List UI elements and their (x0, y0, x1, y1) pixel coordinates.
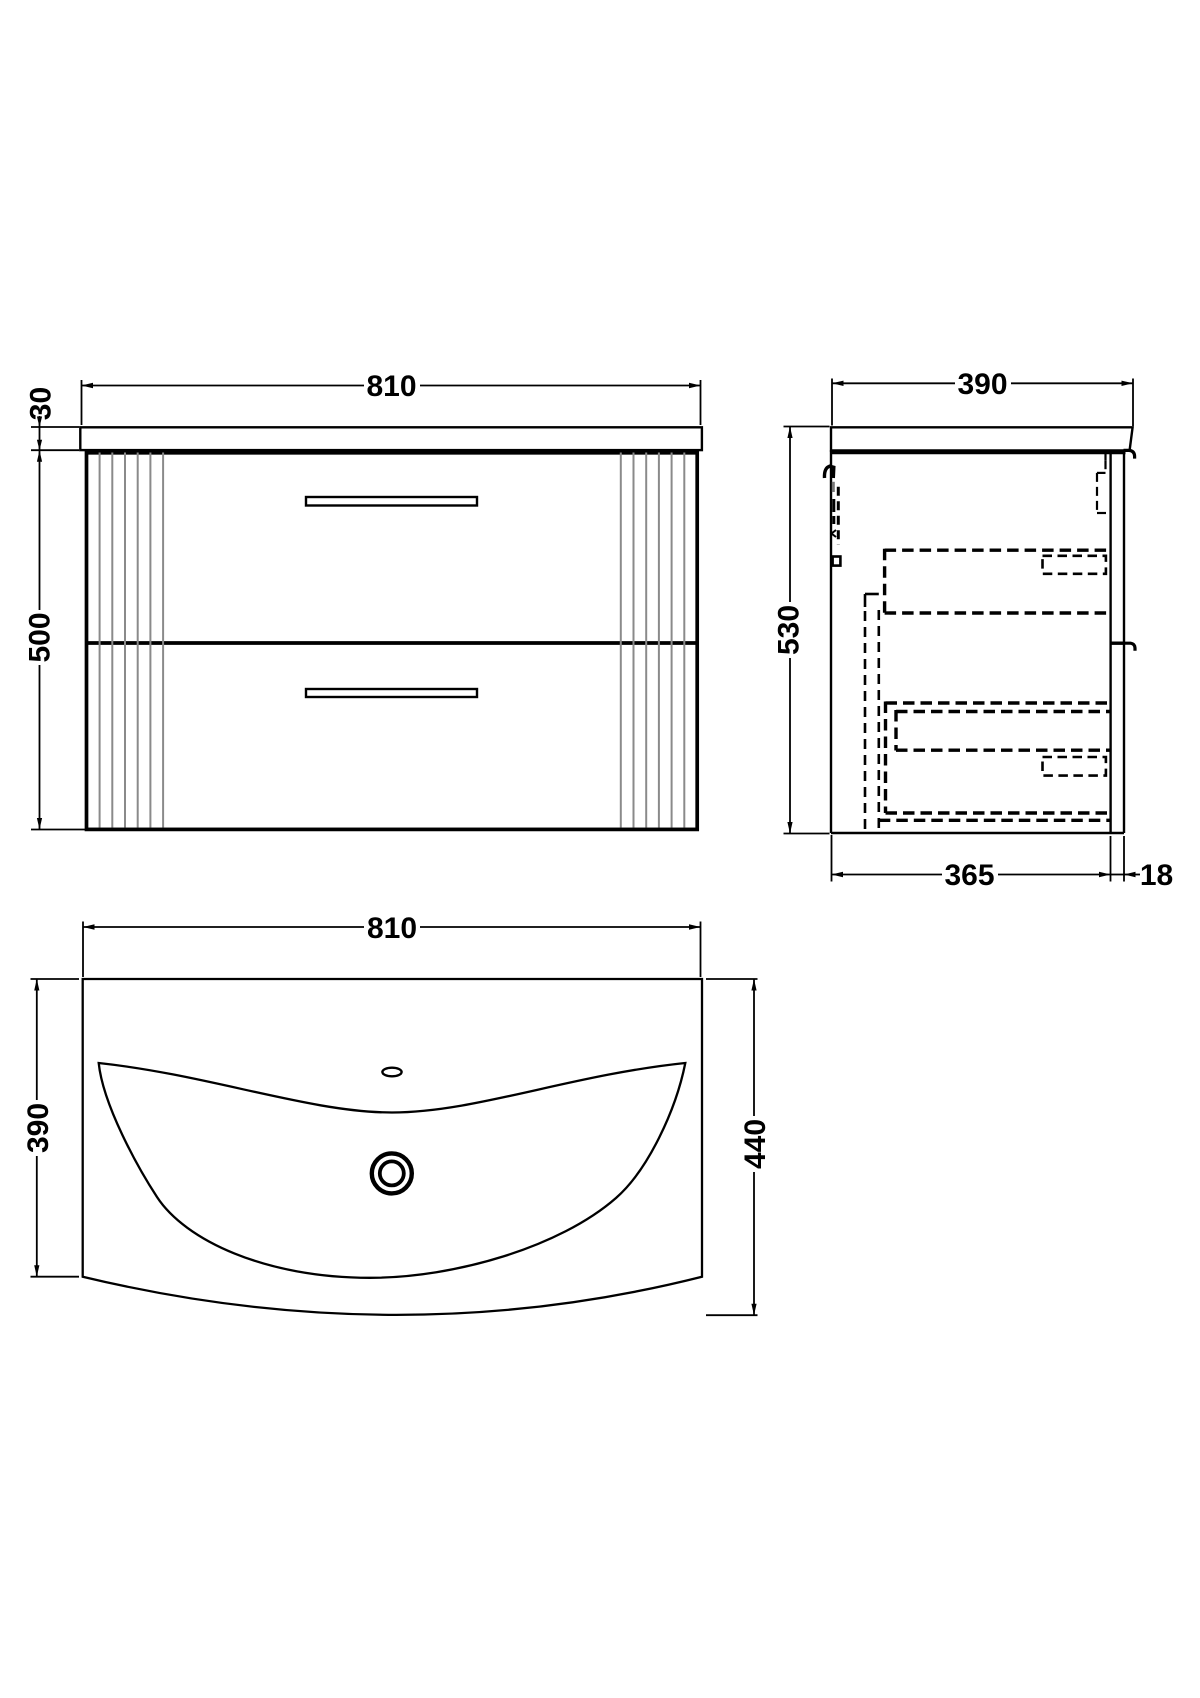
svg-text:440: 440 (739, 1119, 772, 1169)
svg-text:810: 810 (366, 370, 416, 403)
svg-text:810: 810 (367, 912, 417, 945)
svg-text:390: 390 (957, 368, 1007, 401)
svg-text:530: 530 (773, 605, 806, 655)
svg-text:390: 390 (22, 1103, 55, 1153)
svg-text:30: 30 (25, 387, 58, 420)
svg-text:500: 500 (24, 612, 57, 662)
svg-text:365: 365 (944, 859, 994, 892)
svg-text:18: 18 (1140, 859, 1173, 892)
